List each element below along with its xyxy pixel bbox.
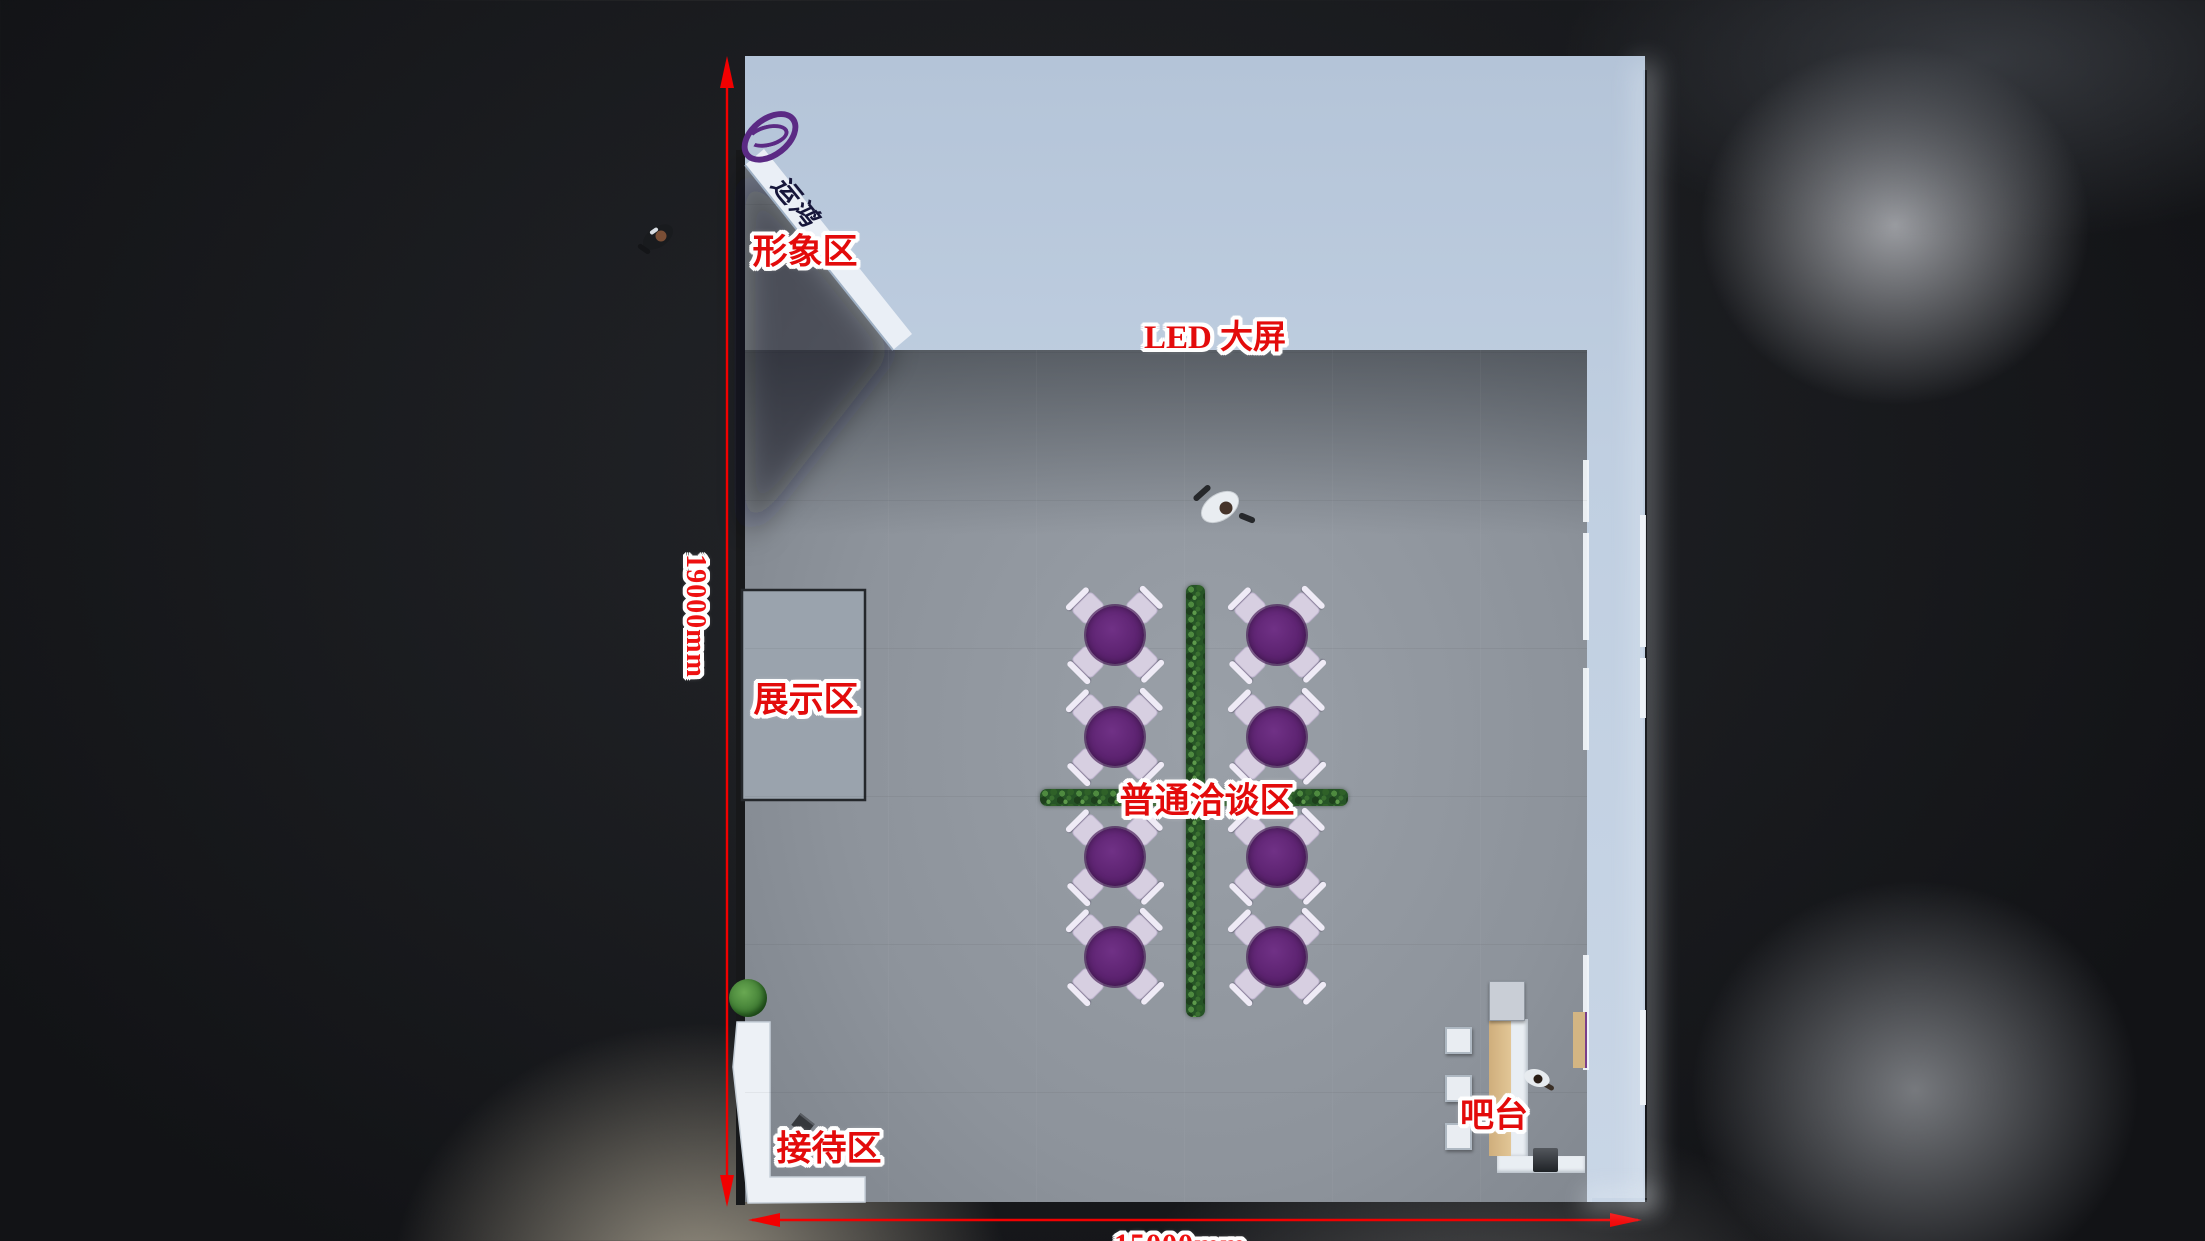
bar-cabinet (1489, 981, 1525, 1021)
table-top (1086, 708, 1144, 766)
wall-outer-glow (1643, 70, 1647, 1200)
table-top (1248, 606, 1306, 664)
table-top (1086, 928, 1144, 986)
label-negotiation-area: 普通洽谈区 (1119, 773, 1294, 824)
label-reception-area: 接待区 (776, 1121, 881, 1172)
table-top (1248, 928, 1306, 986)
dimension-height-label: 19000mm (679, 554, 711, 678)
label-image-area: 形象区 (752, 224, 857, 275)
bar-stool-1 (1445, 1027, 1472, 1054)
wall-bottom-glow (1592, 1198, 1647, 1202)
table-top (1086, 828, 1144, 886)
table-top (1086, 606, 1144, 664)
bar-machine (1533, 1148, 1558, 1172)
label-bar-counter: 吧台 (1460, 1088, 1528, 1137)
table-top (1248, 708, 1306, 766)
wall-shelf-trim (1585, 1012, 1587, 1068)
label-led-screen: LED 大屏 (1144, 310, 1286, 358)
potted-bush (729, 979, 767, 1017)
dimension-width-label: 15000mm (1114, 1228, 1246, 1241)
wall-shelf (1573, 1012, 1585, 1068)
table-top (1248, 828, 1306, 886)
label-display-area: 展示区 (753, 672, 858, 723)
